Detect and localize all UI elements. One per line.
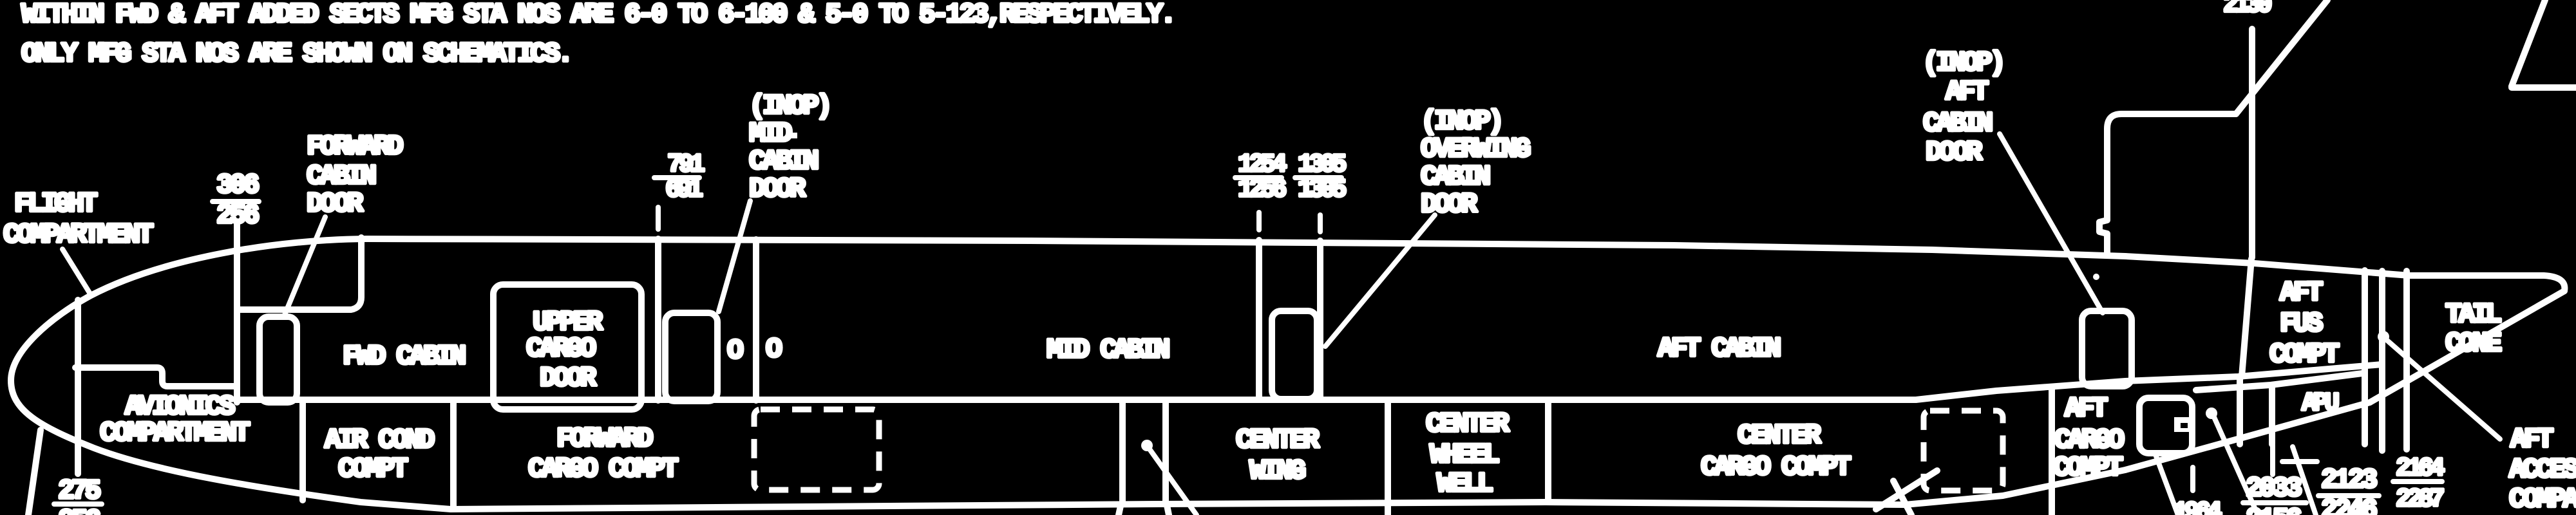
svg-text:256: 256 [216,200,259,231]
svg-text:AFT: AFT [2510,424,2553,455]
svg-text:2033: 2033 [2246,473,2301,504]
svg-text:FLIGHT: FLIGHT [14,188,97,220]
svg-text:WING: WING [1249,455,1305,487]
svg-text:AIR COND: AIR COND [325,424,435,456]
svg-text:DOOR: DOOR [1926,136,1982,168]
svg-text:COMPART: COMPART [2509,483,2576,515]
svg-text:CARGO: CARGO [2054,424,2124,456]
svg-text:2246: 2246 [2321,494,2376,515]
svg-text:COMPT: COMPT [2053,452,2123,483]
svg-text:2156: 2156 [2246,503,2301,515]
svg-text:AFT CABIN: AFT CABIN [1658,333,1779,364]
svg-text:WELL: WELL [1437,468,1492,500]
svg-text:MID: MID [749,118,792,149]
svg-text:306: 306 [216,169,259,201]
svg-text:FUS: FUS [2280,308,2323,339]
svg-text:1964: 1964 [2173,498,2222,515]
svg-text:AFT: AFT [1946,76,1989,108]
svg-text:COMPARTMENT: COMPARTMENT [100,417,250,449]
svg-text:256: 256 [58,505,100,515]
svg-text:CABIN: CABIN [1923,108,1991,139]
svg-text:FORWARD: FORWARD [556,423,653,454]
svg-text:TAIL: TAIL [2445,299,2501,330]
svg-text:MID CABIN: MID CABIN [1046,334,1168,366]
svg-text:DOOR: DOOR [540,362,596,394]
svg-text:COMPARTMENT: COMPARTMENT [3,219,153,250]
svg-text:CABIN: CABIN [749,145,817,177]
svg-text:DOOR: DOOR [749,173,806,205]
svg-text:CARGO COMPT: CARGO COMPT [1701,451,1851,483]
svg-text:CABIN: CABIN [307,160,375,192]
svg-text:CENTER: CENTER [1236,424,1320,456]
svg-text:2123: 2123 [2321,464,2376,496]
svg-text:1305: 1305 [1298,176,1346,205]
svg-text:AFT: AFT [2065,393,2108,424]
svg-text:COMPT: COMPT [2269,339,2339,370]
svg-text:2287: 2287 [2396,485,2444,514]
svg-text:CENTER: CENTER [1738,420,1821,451]
svg-text:WHEEL: WHEEL [1430,439,1499,471]
svg-text:COMPT: COMPT [338,453,408,485]
svg-text:CENTER: CENTER [1426,408,1510,440]
svg-text:(INOP): (INOP) [749,90,829,122]
svg-text:FWD CABIN: FWD CABIN [343,341,464,372]
svg-text:2130: 2130 [2223,0,2271,20]
svg-text:APU: APU [2302,389,2338,418]
svg-text:OVERWING: OVERWING [1421,133,1530,165]
svg-text:CARGO COMPT: CARGO COMPT [528,453,678,485]
svg-text:1256: 1256 [1238,176,1286,205]
svg-text:FORWARD: FORWARD [307,131,403,162]
svg-text:CABIN: CABIN [1421,161,1489,192]
svg-text:CARGO: CARGO [526,333,596,364]
svg-text:DOOR: DOOR [1421,189,1477,220]
svg-text:WITHIN FWD & AFT ADDED SECTS M: WITHIN FWD & AFT ADDED SECTS MFG STA NOS… [21,0,1173,30]
svg-text:(INOP): (INOP) [1421,106,1501,137]
svg-text:(INOP): (INOP) [1922,47,2003,79]
svg-text:ACCESS: ACCESS [2509,454,2576,485]
svg-text:DOOR: DOOR [307,188,363,220]
svg-text:691: 691 [665,176,703,205]
svg-text:AFT: AFT [2280,277,2323,308]
svg-text:CONE: CONE [2445,328,2501,359]
svg-text:ONLY MFG STA NOS ARE SHOWN ON: ONLY MFG STA NOS ARE SHOWN ON SCHEMATICS… [21,38,571,70]
